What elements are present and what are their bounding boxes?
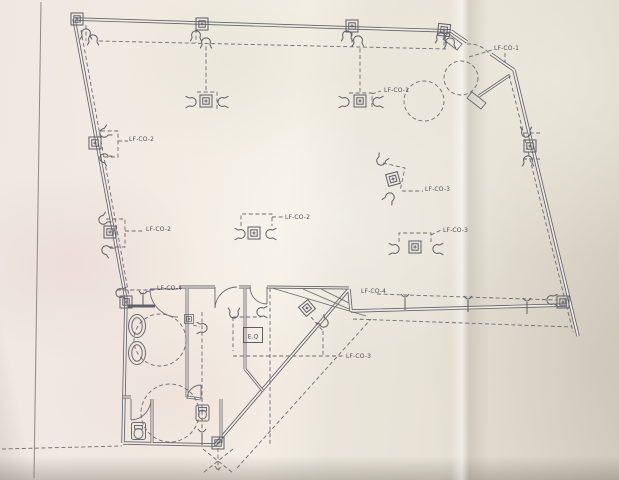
circuit-label: LF-CO-3 xyxy=(346,353,371,360)
sheet-border-line xyxy=(34,2,41,478)
junction-box-icon xyxy=(299,300,316,317)
junction-box-icon xyxy=(354,95,366,107)
conduit-hook-icon xyxy=(100,243,115,258)
junction-box-icon xyxy=(386,172,401,187)
dashed-turning-circle xyxy=(141,384,199,442)
vestibule-door-leaves xyxy=(443,33,486,109)
junction-box-icon xyxy=(409,241,421,253)
dashed-turning-circle xyxy=(444,61,478,95)
conduit-hook-icon xyxy=(352,36,364,47)
scanned-plan-photo: E.Q LF-CO-1 LF-CO-1 LF-CO-2 LF-CO-2 LF-C… xyxy=(0,0,619,480)
circuit-label: LF-CO-4 xyxy=(361,288,386,295)
conduit-hook-icon xyxy=(444,38,456,49)
conduit-hook-icon xyxy=(186,96,197,108)
circuit-label: LF-CO-1 xyxy=(384,87,409,94)
conduit-hook-icon xyxy=(218,96,229,108)
conduit-hook-icon xyxy=(235,228,246,240)
conduit-hook-icon xyxy=(98,125,113,140)
pendant-drop-icon xyxy=(464,296,472,312)
equipment-box-label: E.Q xyxy=(248,334,259,341)
circuit-label: LF-CO-2 xyxy=(285,214,310,221)
conduit-hook-icon xyxy=(522,156,534,167)
circuit-label: LF-CO-1 xyxy=(494,45,519,52)
pendant-drop-icon xyxy=(198,429,206,445)
conduit-hook-icon xyxy=(87,35,99,46)
conduit-hook-icon xyxy=(389,243,400,255)
conduit-hook-icon xyxy=(433,243,444,255)
circuit-label: LF-CO-3 xyxy=(425,186,450,193)
conduit-hook-icon xyxy=(382,191,397,206)
sink-icon xyxy=(129,315,146,338)
junction-box-icon xyxy=(200,95,212,107)
conduit-hook-icon xyxy=(228,308,240,319)
interior-walls xyxy=(123,75,510,443)
floor-plan-drawing: E.Q LF-CO-1 LF-CO-1 LF-CO-2 LF-CO-2 LF-C… xyxy=(0,0,619,480)
junction-box-icon xyxy=(248,227,260,239)
soffit-lines xyxy=(272,288,366,316)
conduit-hook-icon xyxy=(266,228,277,240)
circuit-label: LF-CO-3 xyxy=(443,227,468,234)
conduit-hook-icon xyxy=(373,96,384,108)
pendant-drop-icon xyxy=(401,294,409,310)
circuit-label: LF-CO-2 xyxy=(129,136,154,143)
conduit-hook-icon xyxy=(374,153,389,168)
junction-box-icon xyxy=(346,20,358,32)
toilet-icon xyxy=(132,423,146,440)
conduit-hook-icon xyxy=(257,306,268,318)
circuit-label: LF-CO-4 xyxy=(157,285,182,292)
toilet-icon xyxy=(196,405,209,421)
interior-walls-core xyxy=(123,75,510,443)
dashed-turning-circle xyxy=(404,81,444,121)
conduit-hook-icon xyxy=(339,96,350,108)
circuit-label: LF-CO-2 xyxy=(146,226,171,233)
